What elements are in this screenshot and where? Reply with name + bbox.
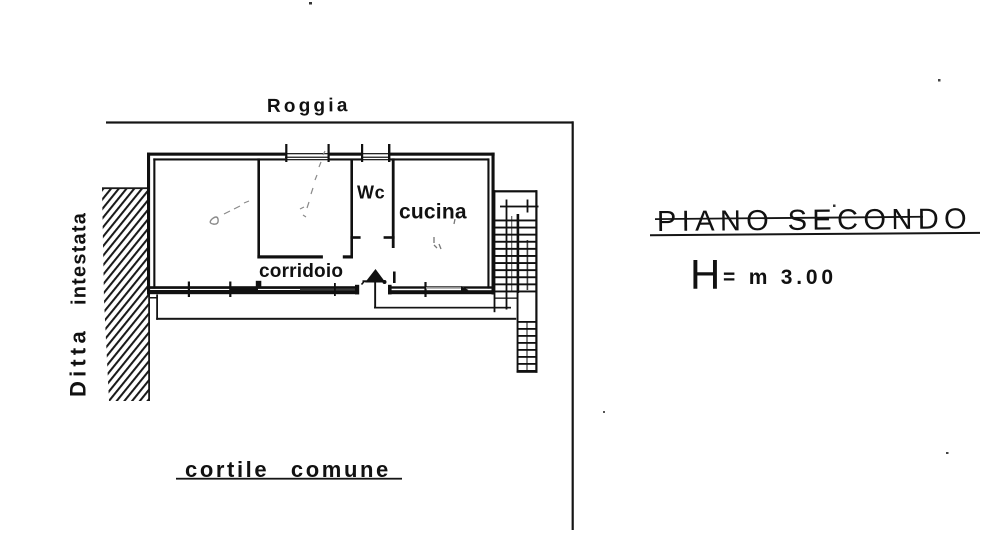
svg-text:Wc: Wc xyxy=(357,183,385,203)
svg-text:cucina: cucina xyxy=(399,201,467,224)
svg-text:= m 3.00: = m 3.00 xyxy=(723,266,837,289)
svg-text:Ditta: Ditta xyxy=(66,327,91,397)
svg-text:H: H xyxy=(690,251,720,298)
svg-text:Roggia: Roggia xyxy=(267,95,351,117)
svg-text:corridoio: corridoio xyxy=(259,261,343,282)
svg-text:intestata: intestata xyxy=(69,212,91,305)
